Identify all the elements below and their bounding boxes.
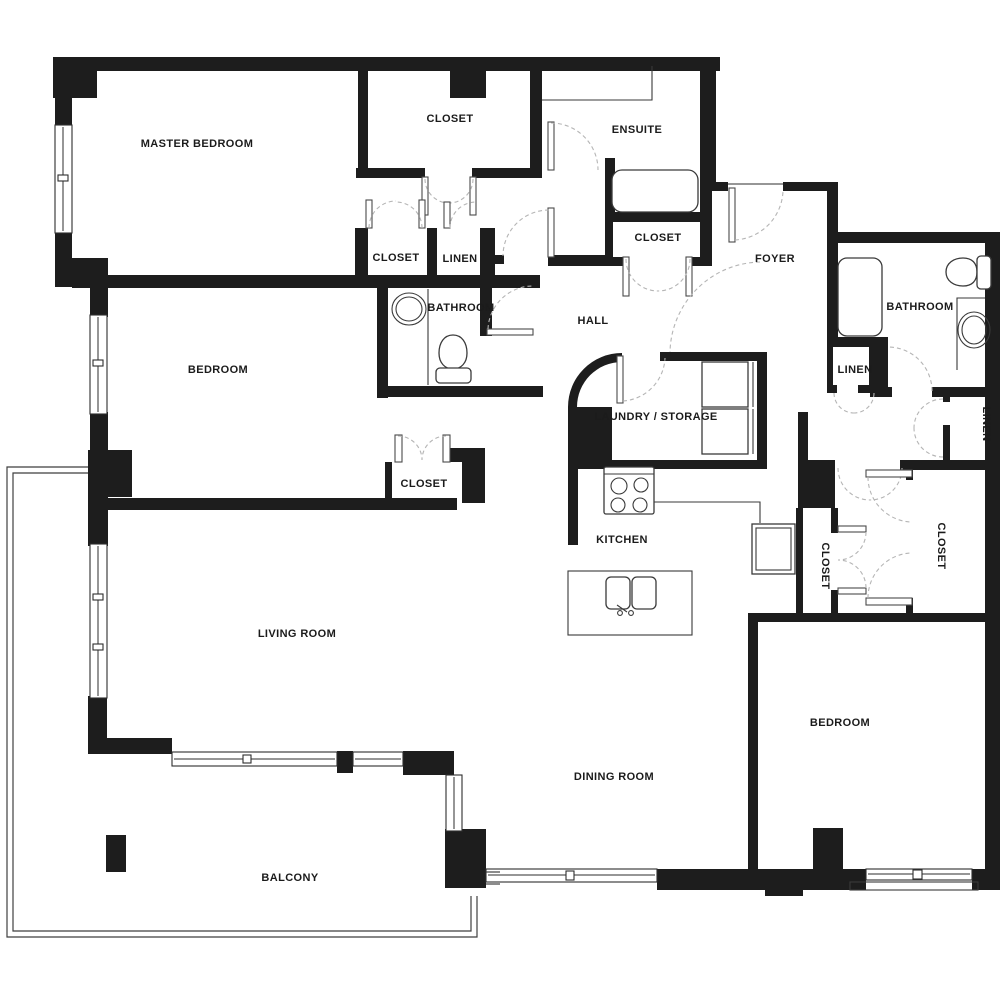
stove-icon	[604, 467, 654, 514]
room-label-closet-hall: CLOSET	[372, 252, 419, 264]
room-label-linen-hall: LINEN	[443, 253, 478, 265]
room-label-master-bedroom: MASTER BEDROOM	[141, 138, 254, 150]
room-label-linen-vertical: LINEN	[980, 407, 992, 442]
walls	[53, 57, 1000, 896]
room-label-laundry-storage: LAUNDRY / STORAGE	[594, 411, 717, 423]
room-label-bathroom-left: BATHROOM	[427, 302, 494, 314]
room-label-dining-room: DINING ROOM	[574, 771, 654, 783]
room-label-bathroom-right: BATHROOM	[886, 301, 953, 313]
room-label-closet-top: CLOSET	[426, 113, 473, 125]
fixtures	[392, 66, 991, 635]
floor-plan-drawing: MASTER BEDROOM CLOSET ENSUITE CLOSET LIN…	[0, 0, 1000, 1000]
floor-plan: MASTER BEDROOM CLOSET ENSUITE CLOSET LIN…	[0, 0, 1000, 1000]
kitchen-counter	[654, 502, 760, 523]
window-dining-left	[446, 775, 462, 831]
room-label-closet-ensuite: CLOSET	[634, 232, 681, 244]
window-bedroom-bottom	[850, 869, 978, 890]
room-label-linen-right: LINEN	[838, 364, 873, 376]
toilet-right-bathroom-icon	[946, 256, 991, 289]
window-bedroom-left	[90, 315, 107, 414]
room-label-ensuite: ENSUITE	[612, 124, 662, 136]
room-label-closet-vertical-left: CLOSET	[819, 542, 831, 589]
room-label-foyer: FOYER	[755, 253, 795, 265]
sink-left-bathroom-icon	[392, 289, 428, 385]
window-dining-bottom	[486, 869, 657, 882]
window-living-bottom-2	[353, 752, 403, 766]
room-label-bedroom-right: BEDROOM	[810, 717, 870, 729]
kitchen-island-sink-icon	[568, 571, 692, 635]
room-label-hall: HALL	[578, 315, 609, 327]
bathtub-ensuite-icon	[612, 170, 698, 212]
room-label-closet-bedroom: CLOSET	[400, 478, 447, 490]
window-living-bottom	[172, 752, 337, 766]
vanity-ensuite-icon	[542, 66, 652, 100]
fridge-icon	[752, 524, 795, 574]
window-master-left	[55, 125, 72, 233]
room-label-kitchen: KITCHEN	[596, 534, 648, 546]
bathtub-right-bathroom-icon	[838, 258, 882, 336]
balcony-railing	[7, 467, 500, 937]
window-living-left	[90, 544, 107, 698]
room-label-balcony: BALCONY	[261, 872, 318, 884]
washer-icon	[702, 362, 753, 407]
room-label-closet-vertical-right: CLOSET	[935, 522, 947, 569]
toilet-left-bathroom-icon	[436, 335, 471, 383]
room-label-living-room: LIVING ROOM	[258, 628, 336, 640]
room-label-bedroom-left: BEDROOM	[188, 364, 248, 376]
